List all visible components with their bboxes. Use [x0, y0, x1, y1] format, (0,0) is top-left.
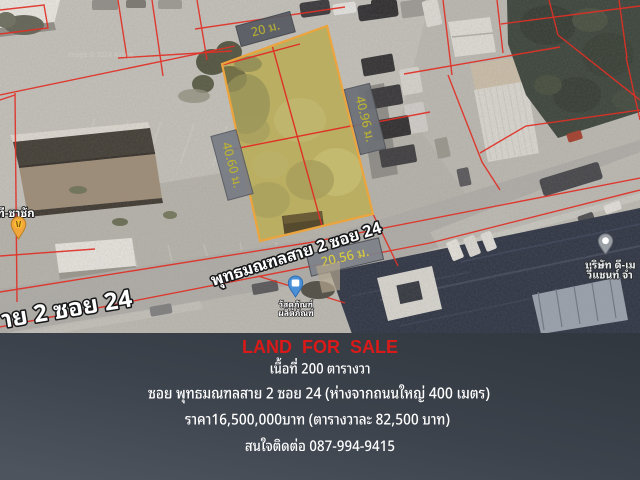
svg-text:LAND FOR SALE: LAND FOR SALE	[242, 337, 398, 357]
svg-text:Image © 2024 Airbus: Image © 2024 Airbus	[68, 51, 134, 59]
